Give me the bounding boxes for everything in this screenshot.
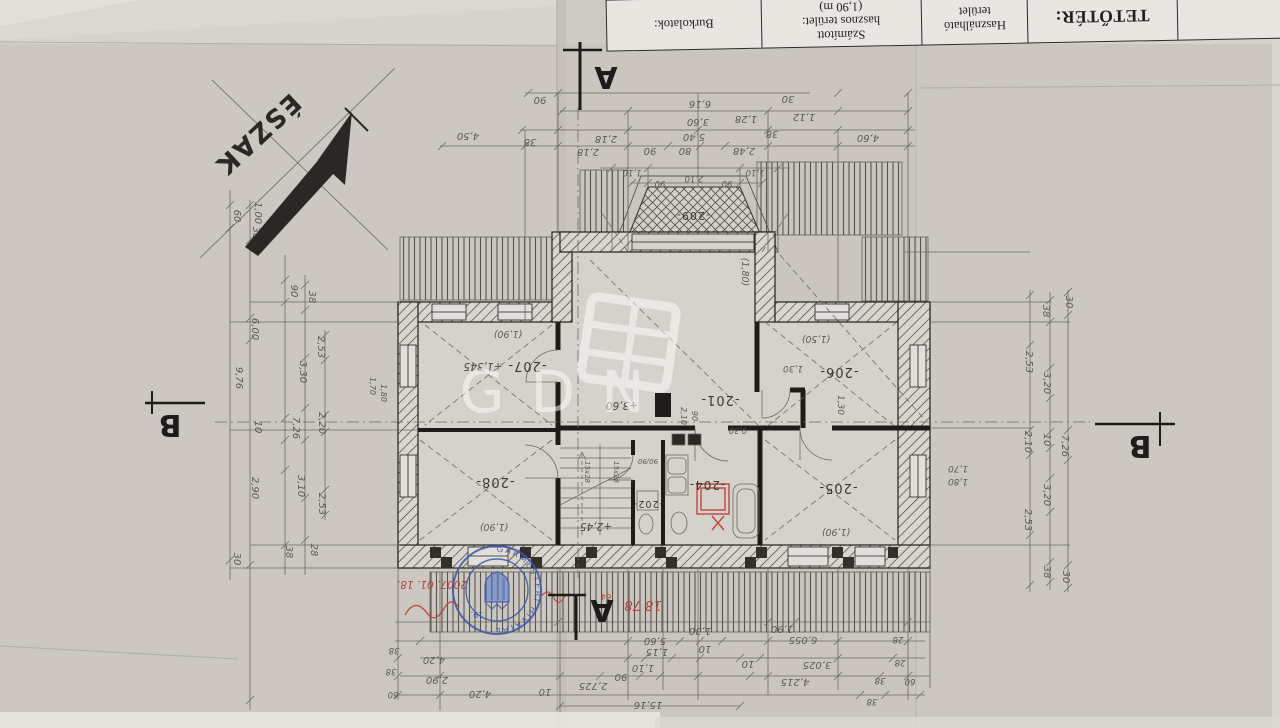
dim-label: 2,48 bbox=[733, 145, 755, 156]
section-letter: A bbox=[590, 592, 614, 627]
par-label: (1,90) bbox=[822, 526, 851, 537]
dim-label: 38 bbox=[1040, 305, 1051, 318]
room-label: -204- bbox=[689, 478, 726, 492]
dim-label: 1,10 bbox=[746, 167, 765, 177]
red-label: 18 78 bbox=[624, 597, 661, 612]
dim-label: 2,10 bbox=[679, 407, 688, 425]
dim-label: 2,53 bbox=[1023, 351, 1034, 373]
dim-label: 1,10 bbox=[623, 167, 642, 177]
red-label: 2007. 01. 18. bbox=[397, 578, 467, 590]
title-block-cell-hasznalhato: Használható terület bbox=[921, 0, 1028, 45]
section-letter: A bbox=[594, 59, 618, 94]
dim-label: 1,15 bbox=[646, 646, 668, 657]
dim-label: 2,53 bbox=[1022, 509, 1033, 531]
dim-label: 1,80 bbox=[948, 476, 968, 486]
dim-label: 4,20 bbox=[423, 654, 445, 665]
dim-label: 1,30 bbox=[835, 395, 845, 415]
dim-label: 3,10 bbox=[295, 475, 306, 497]
dim-label: 60 bbox=[388, 689, 399, 699]
dim-label: 30 bbox=[782, 93, 795, 104]
dim-label: 90 bbox=[722, 178, 733, 188]
room-label: -205- bbox=[818, 480, 857, 495]
dim-label: 5,60 bbox=[644, 635, 666, 646]
dim-label: 1,12 bbox=[793, 111, 815, 122]
dim-label: 6,055 bbox=[789, 634, 818, 645]
dim-label: 3,60 bbox=[687, 116, 709, 127]
dim-label: 30 bbox=[231, 553, 242, 566]
dim-label: 3,30 bbox=[297, 361, 308, 383]
par-label: (1,50) bbox=[802, 333, 831, 344]
dim-label: 10 bbox=[699, 643, 712, 654]
dim-label: 10 bbox=[742, 658, 755, 669]
section-marker-b-left: B bbox=[145, 391, 205, 442]
dim-label: 1,28 bbox=[735, 113, 757, 124]
dim-label: 38 bbox=[306, 291, 317, 304]
dim-label: 80 bbox=[679, 145, 692, 156]
scanned-floorplan-page: -201--202--204--205--206--207--208--209-… bbox=[0, 0, 1280, 728]
dim-label: 1,80 bbox=[379, 384, 388, 402]
dim-label: 3,20 bbox=[1041, 484, 1052, 506]
dim-label: 38 bbox=[874, 675, 885, 685]
par-label: (1,90) bbox=[494, 328, 523, 339]
szamitott-line1: Számított bbox=[803, 27, 881, 42]
dim-label: 28 bbox=[894, 657, 905, 667]
dim-label: 30 bbox=[1063, 296, 1074, 309]
title-block-cell-title: TETŐTÉR: bbox=[1027, 0, 1178, 43]
dim-label: 2,725 bbox=[579, 680, 608, 691]
dim-label: 38 bbox=[866, 696, 877, 706]
dim-label: 0,30 bbox=[729, 426, 747, 435]
lvl-label: +2,45 bbox=[580, 520, 612, 532]
drawing-layer: -201--202--204--205--206--207--208--209-… bbox=[0, 0, 1280, 728]
dim-label: 4,20 bbox=[469, 688, 491, 699]
dim-label: 1,90 bbox=[771, 623, 793, 634]
dim-label: 10 bbox=[539, 686, 552, 697]
title-block-cell-empty bbox=[1176, 0, 1280, 40]
dim-label: 2,18 bbox=[577, 146, 599, 157]
dim-label: 2,90 bbox=[426, 674, 448, 685]
room-label: -209- bbox=[676, 209, 710, 222]
room-label: -202- bbox=[633, 498, 663, 509]
dim-label: 10 bbox=[252, 421, 263, 434]
dim-label: 60 bbox=[231, 210, 242, 223]
dim-label: 38 bbox=[385, 666, 396, 676]
hasznalhato-line2: terület bbox=[943, 4, 1005, 19]
section-marker-b-right: B bbox=[1095, 412, 1175, 463]
watermark-letters: GDN bbox=[460, 358, 671, 426]
dim-label: 9,76 bbox=[233, 367, 244, 389]
burkolatok-label: Burkolatok: bbox=[654, 17, 714, 32]
dim-label: 1,70 bbox=[368, 377, 377, 395]
dim-label: 6,16 bbox=[689, 98, 711, 109]
dim-label: 2,20 bbox=[316, 412, 327, 434]
dim-label: 3,20 bbox=[1041, 372, 1052, 394]
dim-label: 10 bbox=[1041, 434, 1052, 447]
room-label: -208- bbox=[475, 474, 514, 489]
dim-label: 90 bbox=[534, 94, 547, 105]
dim-label: 5,40 bbox=[683, 131, 705, 142]
dim-label: 38 bbox=[283, 546, 294, 559]
sheet-title: TETŐTÉR: bbox=[1055, 6, 1150, 28]
section-letter: B bbox=[1129, 428, 1152, 463]
dim-label: 38 bbox=[388, 645, 399, 655]
dim-label: 2,53 bbox=[315, 336, 326, 358]
room-label: -206- bbox=[819, 364, 858, 379]
title-block-cell-szamitott: Számított hasznos terület: (1,90 m) bbox=[761, 0, 922, 48]
section-letter: B bbox=[159, 407, 182, 442]
dim-label: 90 bbox=[690, 411, 699, 421]
dim-label: 7,26 bbox=[1059, 435, 1070, 457]
par-label: (1,80) bbox=[739, 258, 750, 287]
dim-label: 38 bbox=[1041, 566, 1052, 579]
dim-label: 15x28 bbox=[583, 461, 591, 484]
dim-label: 28 bbox=[892, 634, 903, 644]
dim-label: 1,30 bbox=[689, 625, 711, 636]
dim-label: 2,53 bbox=[316, 493, 327, 515]
title-block-cell-burkolatok: Burkolatok: bbox=[607, 0, 762, 51]
dim-label: 1,70 bbox=[948, 463, 968, 473]
dim-label: 4,60 bbox=[857, 132, 879, 143]
par-label: (1,90) bbox=[480, 521, 509, 532]
dim-label: 1,30 bbox=[783, 363, 803, 373]
dim-label: 2,10 bbox=[685, 173, 704, 183]
dim-label: 15x28 bbox=[612, 461, 620, 484]
dim-label: 2,90 bbox=[249, 477, 260, 499]
hasznalhato-line1: Használható bbox=[944, 18, 1006, 33]
north-arrow: ÉSZAK bbox=[200, 68, 395, 258]
dim-label: 3,025 bbox=[803, 659, 832, 670]
dim-label: 28 bbox=[308, 544, 319, 557]
dim-label: 90 bbox=[655, 178, 666, 188]
dim-label: 15,16 bbox=[634, 699, 663, 710]
dim-label: 2,10 bbox=[1022, 431, 1033, 453]
room-label: -201- bbox=[700, 392, 739, 407]
dim-label: 2,18 bbox=[595, 133, 617, 144]
dim-label: 30 bbox=[1060, 571, 1071, 584]
dim-label: 90 bbox=[644, 145, 657, 156]
szamitott-line2: hasznos terület: bbox=[802, 13, 880, 28]
dim-label: 90 bbox=[288, 285, 299, 298]
dim-label: 60 bbox=[905, 676, 916, 686]
dim-label: 7,26 bbox=[290, 417, 301, 439]
bay-opening bbox=[632, 234, 754, 250]
dim-label: 38 bbox=[524, 136, 537, 147]
dim-label: 90 bbox=[615, 671, 628, 682]
dim-label: 4,50 bbox=[457, 130, 479, 141]
dim-label: 1,10 bbox=[632, 662, 654, 673]
dim-label: 90/90 bbox=[637, 457, 658, 465]
dim-label: 38 bbox=[766, 128, 779, 139]
dim-label: 6,00 bbox=[249, 318, 260, 340]
dim-label: 4,215 bbox=[781, 676, 810, 687]
